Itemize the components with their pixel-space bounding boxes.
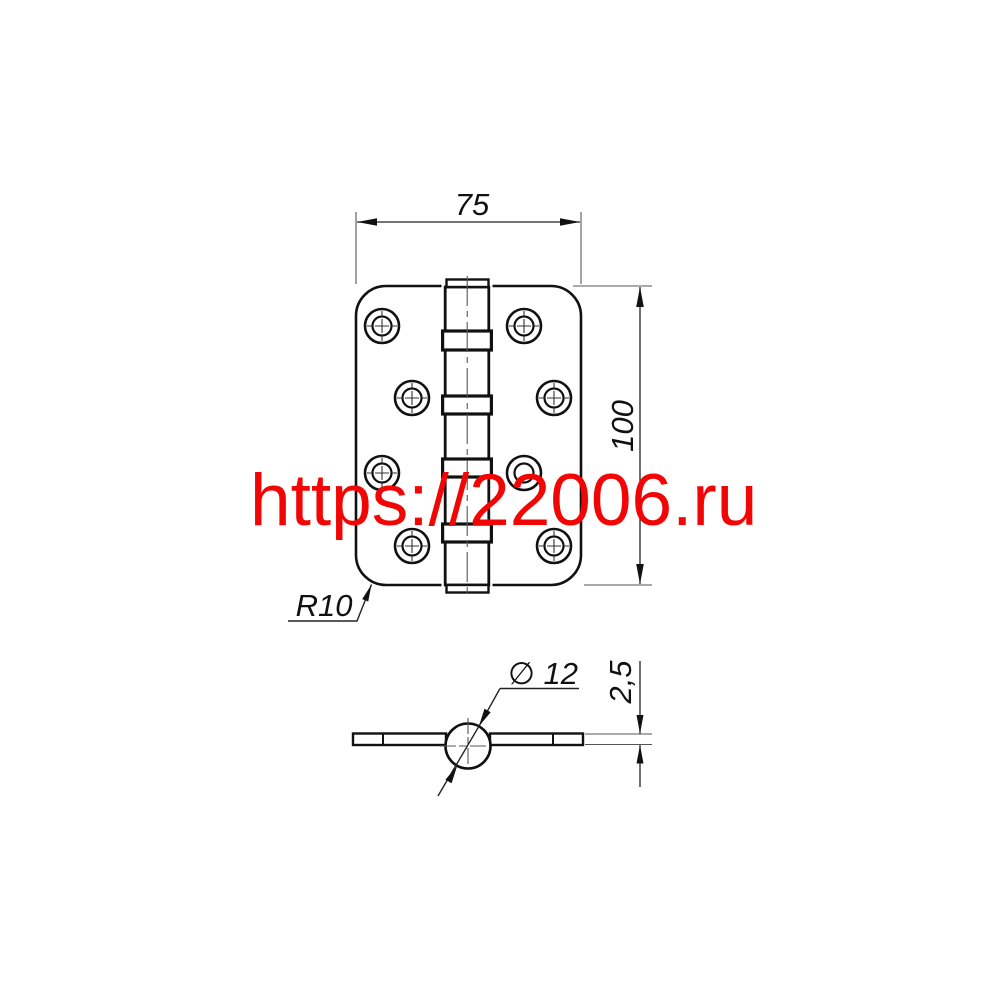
width-dimension: 75 bbox=[357, 187, 580, 226]
front-view: 75 100 bbox=[288, 187, 652, 623]
thickness-label: 2,5 bbox=[603, 660, 638, 705]
arrowhead-down bbox=[637, 715, 644, 734]
section-view: ∅ 12 2,5 bbox=[353, 656, 652, 796]
screw-hole bbox=[537, 381, 571, 415]
arrowhead bbox=[479, 709, 491, 727]
hinge-technical-drawing: 75 100 bbox=[0, 0, 1000, 1000]
width-dimension-label: 75 bbox=[455, 187, 490, 222]
arrowhead-up bbox=[636, 287, 644, 307]
right-leaf bbox=[490, 734, 583, 746]
arrowhead-up bbox=[637, 745, 644, 764]
watermark-url: https://22006.ru bbox=[250, 464, 757, 537]
left-leaf bbox=[353, 734, 446, 746]
arrowhead bbox=[362, 585, 371, 602]
screw-hole bbox=[395, 381, 429, 415]
screw-hole bbox=[365, 309, 399, 343]
diameter-label: ∅ 12 bbox=[508, 656, 578, 691]
hinge-barrel bbox=[442, 276, 493, 598]
arrowhead bbox=[445, 766, 457, 784]
arrowhead-left bbox=[357, 218, 377, 226]
thickness-dimension: 2,5 bbox=[585, 660, 652, 787]
arrowhead-down bbox=[636, 564, 644, 584]
height-dimension-label: 100 bbox=[605, 400, 640, 452]
radius-label: R10 bbox=[296, 588, 353, 623]
arrowhead-right bbox=[560, 218, 580, 226]
screw-hole bbox=[507, 309, 541, 343]
radius-callout: R10 bbox=[288, 585, 372, 624]
